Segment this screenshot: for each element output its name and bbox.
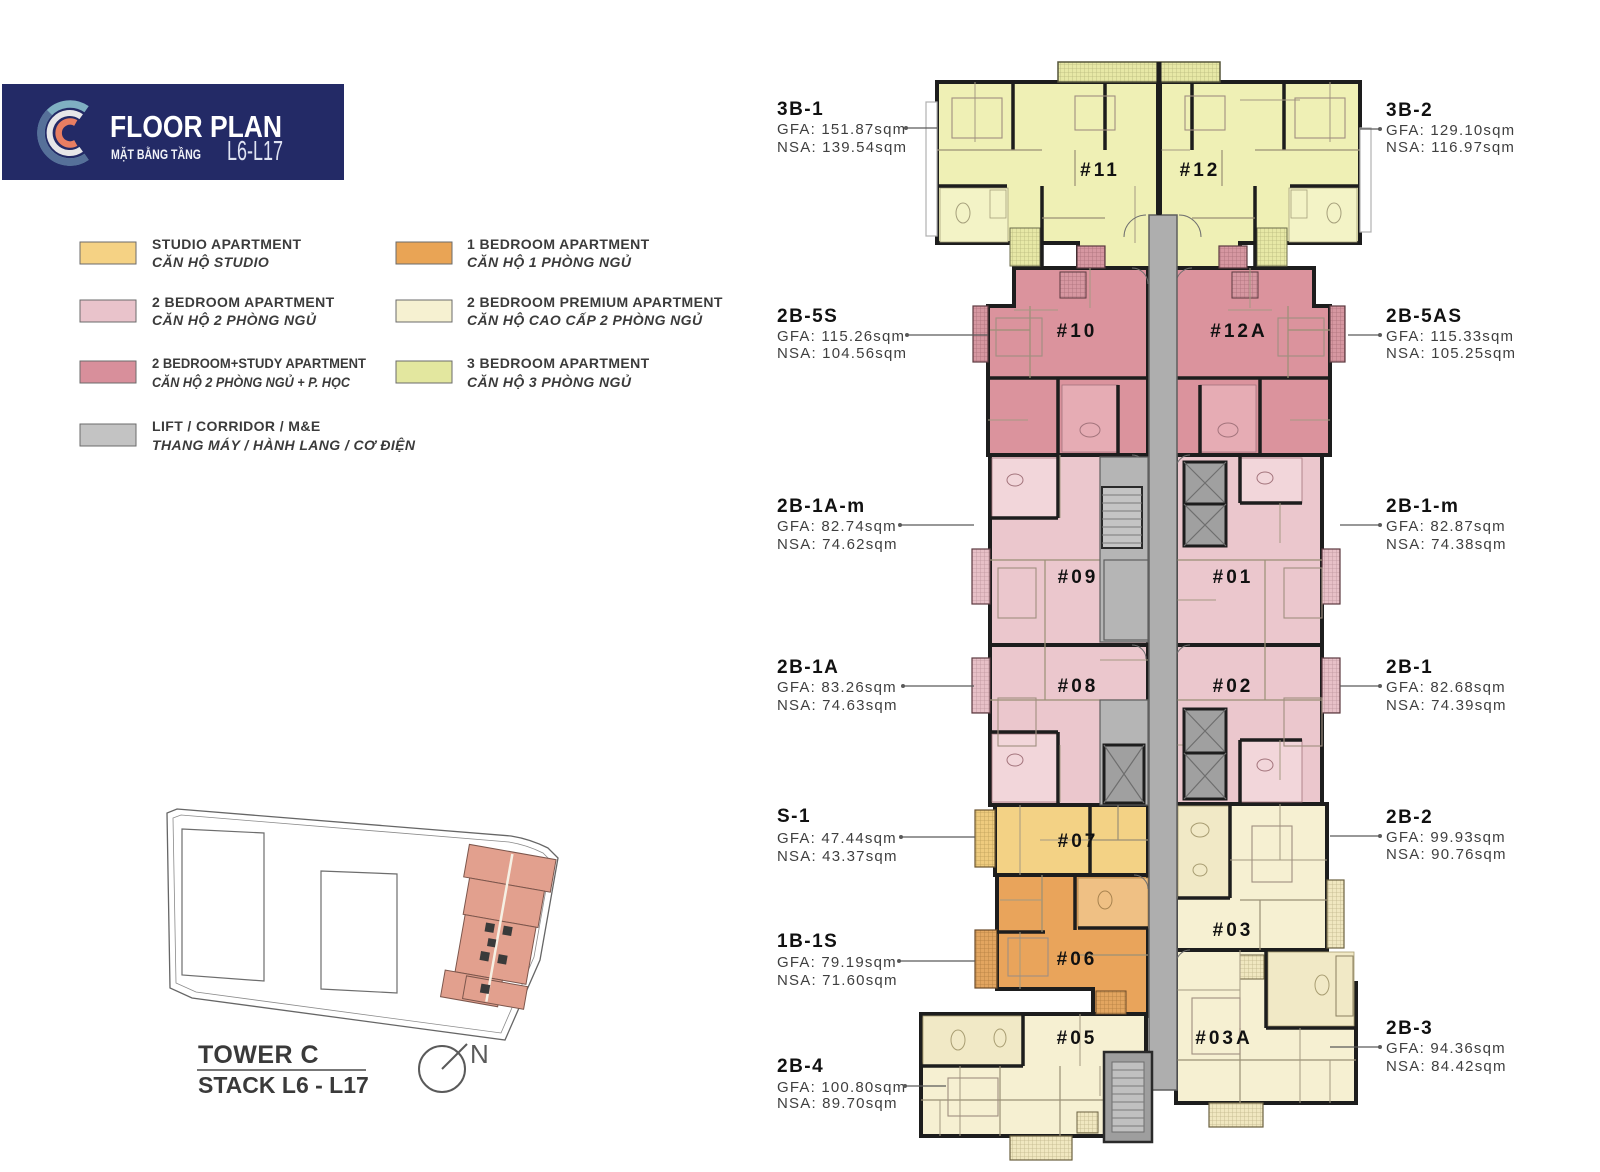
svg-text:#05: #05: [1057, 1028, 1098, 1049]
svg-text:NSA: 71.60sqm: NSA: 71.60sqm: [777, 972, 898, 989]
svg-text:NSA: 89.70sqm: NSA: 89.70sqm: [777, 1095, 898, 1112]
svg-text:NSA: 139.54sqm: NSA: 139.54sqm: [777, 139, 907, 156]
svg-text:GFA: 82.87sqm: GFA: 82.87sqm: [1386, 518, 1506, 535]
svg-text:#12A: #12A: [1210, 321, 1267, 342]
svg-text:3 BEDROOM APARTMENT: 3 BEDROOM APARTMENT: [467, 355, 650, 371]
svg-text:2B-1: 2B-1: [1386, 657, 1433, 678]
svg-text:2B-1A-m: 2B-1A-m: [777, 496, 866, 517]
svg-text:1B-1S: 1B-1S: [777, 931, 838, 952]
svg-text:GFA: 100.80sqm: GFA: 100.80sqm: [777, 1079, 906, 1096]
svg-text:N: N: [470, 1039, 489, 1069]
svg-text:#11: #11: [1080, 160, 1120, 181]
svg-text:2B-3: 2B-3: [1386, 1018, 1433, 1039]
svg-text:LIFT / CORRIDOR / M&E: LIFT / CORRIDOR / M&E: [152, 418, 321, 434]
svg-text:#12: #12: [1180, 160, 1221, 181]
svg-text:GFA: 115.33sqm: GFA: 115.33sqm: [1386, 328, 1514, 345]
svg-text:CĂN HỘ 3 PHÒNG NGỦ: CĂN HỘ 3 PHÒNG NGỦ: [467, 373, 632, 390]
svg-text:NSA: 105.25sqm: NSA: 105.25sqm: [1386, 345, 1516, 362]
svg-text:2B-1-m: 2B-1-m: [1386, 496, 1459, 517]
svg-text:NSA: 90.76sqm: NSA: 90.76sqm: [1386, 846, 1507, 863]
svg-text:STACK L6 - L17: STACK L6 - L17: [198, 1072, 369, 1098]
svg-text:#03A: #03A: [1195, 1028, 1252, 1049]
svg-text:NSA: 74.63sqm: NSA: 74.63sqm: [777, 697, 898, 714]
svg-text:GFA: 79.19sqm: GFA: 79.19sqm: [777, 954, 897, 971]
svg-text:#10: #10: [1057, 321, 1098, 342]
svg-text:GFA: 151.87sqm: GFA: 151.87sqm: [777, 121, 906, 138]
svg-text:GFA: 82.74sqm: GFA: 82.74sqm: [777, 518, 897, 535]
svg-text:STUDIO APARTMENT: STUDIO APARTMENT: [152, 236, 302, 252]
svg-text:1 BEDROOM APARTMENT: 1 BEDROOM APARTMENT: [467, 236, 650, 252]
svg-text:2 BEDROOM APARTMENT: 2 BEDROOM APARTMENT: [152, 294, 335, 310]
svg-text:GFA: 83.26sqm: GFA: 83.26sqm: [777, 679, 897, 696]
svg-text:3B-1: 3B-1: [777, 99, 824, 120]
svg-text:2 BEDROOM+STUDY APARTMENT: 2 BEDROOM+STUDY APARTMENT: [152, 355, 366, 371]
svg-text:NSA: 116.97sqm: NSA: 116.97sqm: [1386, 139, 1515, 156]
svg-text:2B-2: 2B-2: [1386, 807, 1433, 828]
svg-text:CĂN HỘ 1 PHÒNG NGỦ: CĂN HỘ 1 PHÒNG NGỦ: [467, 253, 632, 270]
svg-text:3B-2: 3B-2: [1386, 100, 1433, 121]
svg-text:MẶT BẰNG TẦNG: MẶT BẰNG TẦNG: [111, 147, 201, 162]
svg-text:GFA: 129.10sqm: GFA: 129.10sqm: [1386, 122, 1515, 139]
svg-text:L6-L17: L6-L17: [227, 135, 283, 166]
svg-text:NSA: 43.37sqm: NSA: 43.37sqm: [777, 848, 898, 865]
svg-text:GFA: 47.44sqm: GFA: 47.44sqm: [777, 830, 897, 847]
svg-text:#02: #02: [1213, 676, 1254, 697]
svg-text:THANG MÁY / HÀNH LANG / CƠ ĐIỆ: THANG MÁY / HÀNH LANG / CƠ ĐIỆN: [152, 436, 416, 453]
svg-text:#03: #03: [1213, 920, 1254, 941]
svg-text:2B-4: 2B-4: [777, 1056, 824, 1077]
svg-text:GFA: 94.36sqm: GFA: 94.36sqm: [1386, 1040, 1506, 1057]
svg-text:#06: #06: [1057, 949, 1098, 970]
svg-text:CĂN HỘ CAO CẤP 2 PHÒNG NGỦ: CĂN HỘ CAO CẤP 2 PHÒNG NGỦ: [467, 311, 703, 328]
svg-text:NSA: 104.56sqm: NSA: 104.56sqm: [777, 345, 907, 362]
svg-text:NSA: 74.39sqm: NSA: 74.39sqm: [1386, 697, 1507, 714]
svg-text:GFA: 82.68sqm: GFA: 82.68sqm: [1386, 679, 1506, 696]
svg-text:NSA: 84.42sqm: NSA: 84.42sqm: [1386, 1058, 1507, 1075]
svg-text:CĂN HỘ 2 PHÒNG NGỦ: CĂN HỘ 2 PHÒNG NGỦ: [152, 311, 317, 328]
svg-text:TOWER C: TOWER C: [198, 1041, 319, 1069]
svg-text:GFA: 115.26sqm: GFA: 115.26sqm: [777, 328, 905, 345]
svg-text:2B-5S: 2B-5S: [777, 306, 838, 327]
svg-text:NSA: 74.38sqm: NSA: 74.38sqm: [1386, 536, 1507, 553]
svg-text:NSA: 74.62sqm: NSA: 74.62sqm: [777, 536, 898, 553]
svg-text:GFA: 99.93sqm: GFA: 99.93sqm: [1386, 829, 1506, 846]
svg-text:#07: #07: [1058, 831, 1099, 852]
svg-text:CĂN HỘ 2 PHÒNG NGỦ + P. HỌC: CĂN HỘ 2 PHÒNG NGỦ + P. HỌC: [152, 373, 351, 390]
svg-text:#09: #09: [1058, 567, 1099, 588]
svg-text:2B-1A: 2B-1A: [777, 657, 839, 678]
svg-text:S-1: S-1: [777, 806, 811, 827]
svg-text:#01: #01: [1213, 567, 1254, 588]
svg-text:2B-5AS: 2B-5AS: [1386, 306, 1463, 327]
svg-text:#08: #08: [1058, 676, 1099, 697]
svg-text:CĂN HỘ STUDIO: CĂN HỘ STUDIO: [152, 253, 269, 270]
svg-text:2 BEDROOM PREMIUM APARTMENT: 2 BEDROOM PREMIUM APARTMENT: [467, 294, 723, 310]
